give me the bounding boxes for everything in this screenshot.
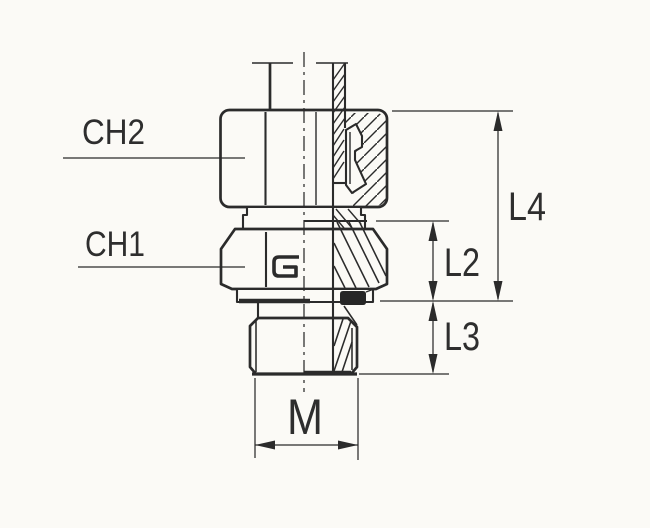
dimension-ch2: CH2 (63, 113, 245, 158)
arrow-up-icon (494, 111, 503, 131)
arrow-right-icon (338, 441, 358, 450)
label-l2: L2 (444, 241, 480, 285)
arrow-left-icon (255, 441, 275, 450)
label-l3: L3 (444, 315, 480, 359)
dimension-m: M (255, 378, 358, 460)
label-m: M (287, 389, 323, 445)
arrow-down-icon (429, 354, 438, 374)
arrow-up-icon (429, 301, 438, 321)
seal-ring (340, 291, 366, 305)
drawing-canvas: CH2 CH1 L4 L2 (0, 0, 650, 528)
label-ch1: CH1 (85, 225, 145, 264)
fitting-section-drawing: CH2 CH1 L4 L2 (0, 0, 650, 528)
label-ch2: CH2 (82, 113, 145, 152)
arrow-down-icon (494, 281, 503, 301)
dimension-l2: L2 (429, 221, 481, 301)
dimension-l3: L3 (429, 301, 481, 374)
arrow-up-icon (429, 221, 438, 241)
dimension-l4: L4 (494, 111, 547, 301)
label-l4: L4 (508, 185, 546, 229)
arrow-down-icon (429, 281, 438, 301)
